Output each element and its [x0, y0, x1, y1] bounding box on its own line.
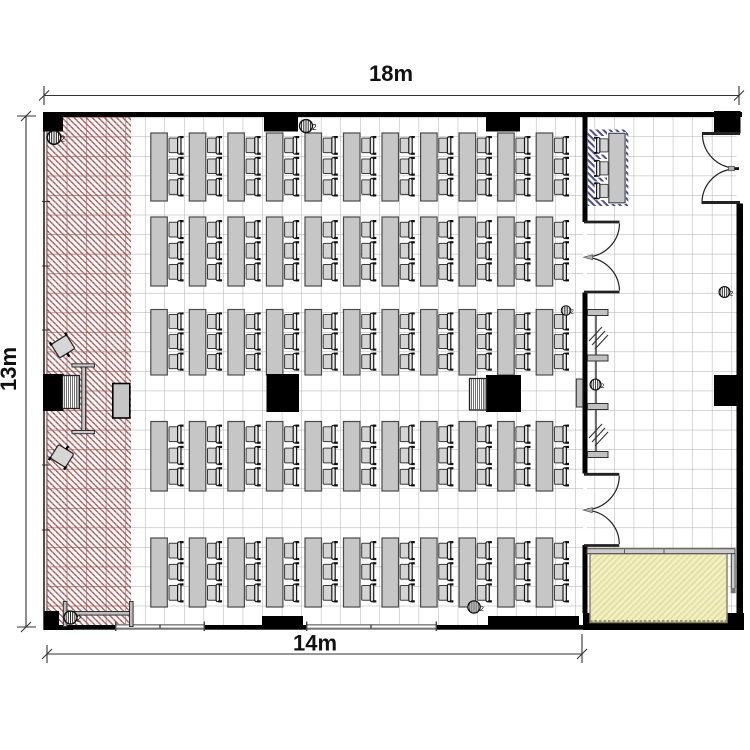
svg-text:14m: 14m: [293, 631, 337, 656]
svg-text:13m: 13m: [0, 347, 21, 391]
svg-text:18m: 18m: [369, 61, 413, 86]
